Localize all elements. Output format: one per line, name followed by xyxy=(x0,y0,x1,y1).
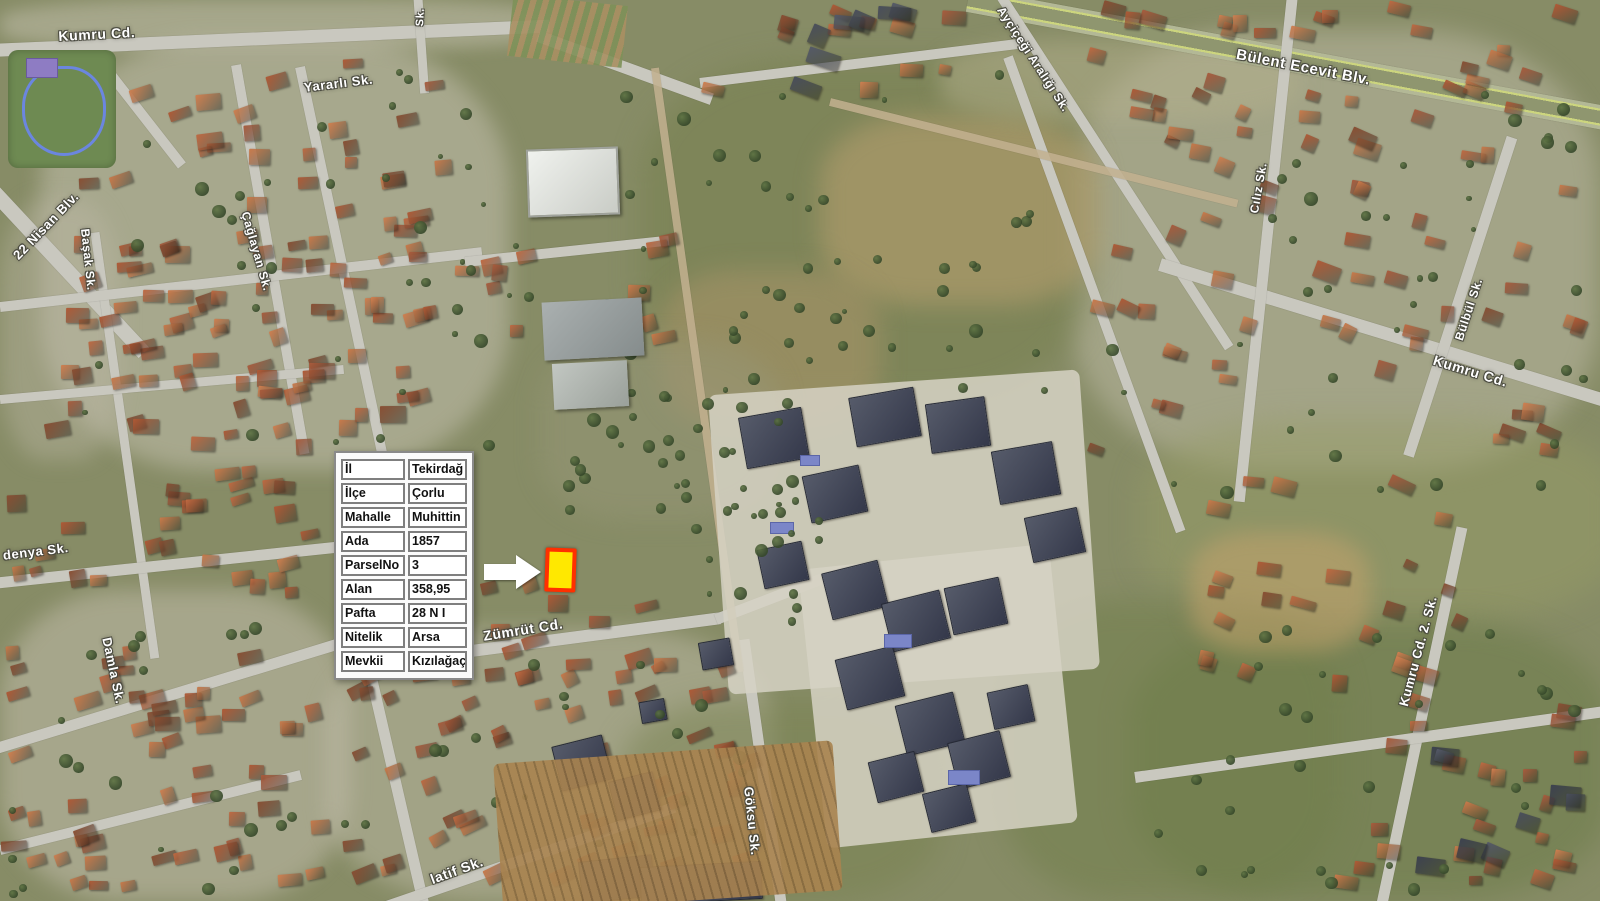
tree xyxy=(751,513,757,519)
tree xyxy=(1254,662,1263,671)
building xyxy=(311,304,334,316)
building xyxy=(1519,67,1543,85)
parcel-info-row: Pafta28 N I xyxy=(341,603,467,624)
building xyxy=(1087,443,1105,457)
tree xyxy=(1154,829,1163,838)
tree xyxy=(1325,877,1338,890)
tree xyxy=(1408,883,1421,896)
park-area xyxy=(8,50,116,168)
tree xyxy=(606,425,620,439)
building xyxy=(179,372,197,392)
building xyxy=(344,278,367,289)
road xyxy=(699,38,1028,88)
building xyxy=(515,248,536,265)
tree xyxy=(969,324,982,337)
tree xyxy=(882,97,887,102)
building xyxy=(941,10,966,26)
tree xyxy=(361,820,370,829)
tree xyxy=(681,492,692,503)
tree xyxy=(803,263,814,274)
tree xyxy=(1417,275,1424,282)
building xyxy=(1469,876,1482,885)
building xyxy=(300,528,319,540)
building xyxy=(548,595,568,612)
tree xyxy=(246,429,259,442)
building xyxy=(190,436,215,451)
building xyxy=(615,668,633,683)
building xyxy=(1552,4,1579,24)
tree xyxy=(1237,342,1242,347)
building xyxy=(1197,649,1214,666)
arrow-head xyxy=(516,555,541,589)
tree xyxy=(1196,865,1207,876)
building xyxy=(1233,15,1248,32)
building xyxy=(265,71,289,91)
tree xyxy=(1518,670,1525,677)
building xyxy=(1299,110,1321,124)
building xyxy=(359,687,374,702)
building xyxy=(148,742,164,757)
tree xyxy=(641,246,647,252)
building xyxy=(1200,212,1222,228)
building xyxy=(429,829,450,847)
tree xyxy=(794,303,805,314)
arrow-shaft xyxy=(484,564,517,580)
building xyxy=(71,367,93,386)
building xyxy=(129,83,155,103)
road xyxy=(1403,136,1517,458)
tree xyxy=(729,448,736,455)
building xyxy=(67,798,86,813)
tree xyxy=(1279,703,1292,716)
tree xyxy=(1324,285,1332,293)
warehouse-building xyxy=(526,146,620,217)
building xyxy=(1261,592,1281,609)
tree xyxy=(946,345,953,352)
tree xyxy=(335,356,341,362)
tree xyxy=(842,309,848,315)
building xyxy=(560,669,579,689)
building xyxy=(274,480,296,495)
building xyxy=(303,147,317,161)
building xyxy=(6,686,30,702)
parcel-info-row: ParselNo3 xyxy=(341,555,467,576)
tree xyxy=(749,150,761,162)
building xyxy=(192,765,212,779)
tree xyxy=(620,91,632,103)
building xyxy=(69,568,87,587)
building xyxy=(233,104,256,124)
building xyxy=(74,690,103,711)
tree xyxy=(559,692,568,701)
tree xyxy=(1466,196,1472,202)
building xyxy=(261,775,287,791)
tree xyxy=(1220,486,1233,499)
building xyxy=(1344,232,1371,249)
building xyxy=(310,819,330,834)
tree xyxy=(1521,802,1529,810)
tree xyxy=(1106,344,1118,356)
building xyxy=(262,311,279,323)
building xyxy=(89,881,109,891)
building xyxy=(534,698,550,710)
building xyxy=(201,555,219,568)
building xyxy=(589,616,610,628)
building xyxy=(231,493,252,508)
tree xyxy=(774,418,782,426)
tree xyxy=(691,524,702,535)
tree xyxy=(784,338,794,348)
parcel-field-label: Ada xyxy=(341,531,405,552)
tree xyxy=(674,483,680,489)
building xyxy=(165,483,180,498)
tree xyxy=(326,179,335,188)
building xyxy=(66,308,89,323)
tree xyxy=(625,190,635,200)
tree xyxy=(806,357,813,364)
parcel-field-value: Kızılağaç xyxy=(408,651,467,672)
parcel-field-value: 28 N I xyxy=(408,603,467,624)
building xyxy=(54,851,71,867)
tree xyxy=(779,93,787,101)
parcel-field-value: 1857 xyxy=(408,531,467,552)
building xyxy=(235,375,248,390)
tree xyxy=(1536,480,1546,490)
tree xyxy=(1225,806,1234,815)
tree xyxy=(729,326,739,336)
building xyxy=(197,687,210,700)
building xyxy=(1574,751,1587,763)
building xyxy=(70,874,89,891)
building xyxy=(26,853,48,868)
tree xyxy=(414,221,427,234)
building xyxy=(274,504,298,524)
tree xyxy=(723,387,729,393)
parcel-field-value: Muhittin xyxy=(408,507,467,528)
parcel-field-label: Mahalle xyxy=(341,507,405,528)
building xyxy=(396,366,410,379)
building xyxy=(1410,24,1433,39)
building xyxy=(281,257,301,273)
building xyxy=(1384,270,1408,289)
tree xyxy=(143,140,151,148)
tree xyxy=(1268,214,1277,223)
tree xyxy=(1301,711,1313,723)
building xyxy=(1521,403,1545,423)
tree xyxy=(1428,272,1438,282)
tree xyxy=(762,286,770,294)
tree xyxy=(1415,700,1423,708)
building xyxy=(1206,500,1232,518)
tree xyxy=(58,717,65,724)
tree xyxy=(1445,640,1456,651)
building xyxy=(257,370,277,387)
large-building-annex xyxy=(552,360,629,410)
tree xyxy=(939,263,950,274)
building xyxy=(1116,298,1140,318)
building xyxy=(6,495,26,513)
tree xyxy=(888,343,897,352)
tree xyxy=(655,710,665,720)
building xyxy=(1473,819,1497,836)
tree xyxy=(706,556,713,563)
building xyxy=(1535,832,1550,846)
tree xyxy=(1304,192,1317,205)
tree xyxy=(471,733,481,743)
building xyxy=(484,667,504,682)
tree xyxy=(575,464,586,475)
tree xyxy=(507,293,512,298)
tree xyxy=(937,285,949,297)
building xyxy=(0,840,26,852)
building xyxy=(44,420,72,439)
building xyxy=(1530,869,1555,890)
tree xyxy=(1247,866,1255,874)
building xyxy=(196,93,222,111)
building xyxy=(1371,823,1388,836)
building xyxy=(162,732,183,749)
building xyxy=(510,325,523,337)
satellite-map[interactable]: Kumru Cd.Yararlı Sk.22 Nisan Blv.Başak S… xyxy=(0,0,1600,901)
building xyxy=(383,216,397,231)
building xyxy=(462,695,480,711)
tree xyxy=(1289,236,1297,244)
tree xyxy=(240,630,249,639)
building xyxy=(244,124,261,141)
tree xyxy=(452,304,463,315)
parcel-field-value: Arsa xyxy=(408,627,467,648)
building xyxy=(1137,303,1155,320)
building xyxy=(1411,109,1435,128)
tree xyxy=(958,383,968,393)
tree xyxy=(618,442,624,448)
tree xyxy=(651,158,659,166)
tree xyxy=(229,866,239,876)
tree xyxy=(1386,862,1393,869)
tree xyxy=(513,243,519,249)
building xyxy=(1124,11,1141,29)
tree xyxy=(663,435,674,446)
tree xyxy=(158,847,164,853)
tree xyxy=(389,102,397,110)
tree xyxy=(483,440,494,451)
building xyxy=(1410,721,1427,731)
building xyxy=(1212,359,1228,370)
tree xyxy=(1308,409,1315,416)
tree xyxy=(317,122,327,132)
tree xyxy=(1377,486,1384,493)
tree xyxy=(1226,755,1235,764)
building xyxy=(351,863,378,885)
tree xyxy=(755,544,768,557)
orchard-field xyxy=(507,0,628,68)
tree xyxy=(212,205,225,218)
building xyxy=(486,281,503,296)
building xyxy=(108,170,132,188)
parcel-info-row: MahalleMuhittin xyxy=(341,507,467,528)
tree xyxy=(452,331,457,336)
building xyxy=(1089,300,1115,318)
tree xyxy=(830,313,842,325)
tree xyxy=(1303,287,1312,296)
tree xyxy=(736,402,748,414)
tree xyxy=(748,373,760,385)
parcel-info-row: İlTekirdağ xyxy=(341,459,467,480)
building xyxy=(396,112,419,127)
tree xyxy=(565,505,575,515)
building xyxy=(491,264,507,281)
tree xyxy=(1282,625,1292,635)
tree xyxy=(713,149,726,162)
building xyxy=(355,408,368,422)
building xyxy=(1353,861,1374,877)
building xyxy=(790,76,824,100)
parcel-field-value: Tekirdağ xyxy=(408,459,467,480)
building xyxy=(11,565,26,582)
apartment-block xyxy=(991,441,1061,505)
tree xyxy=(1579,375,1587,383)
tree xyxy=(333,439,339,445)
parcel-field-value: 3 xyxy=(408,555,467,576)
tree xyxy=(1511,783,1521,793)
tree xyxy=(629,413,637,421)
tree xyxy=(8,855,17,864)
tree xyxy=(656,503,667,514)
building xyxy=(1434,512,1453,528)
building xyxy=(1536,423,1562,442)
building xyxy=(382,853,405,873)
tree xyxy=(788,530,795,537)
building xyxy=(214,467,240,482)
tree xyxy=(636,661,645,670)
parcel-field-label: İlçe xyxy=(341,483,405,504)
parcel-info-row: Ada1857 xyxy=(341,531,467,552)
tree xyxy=(19,884,27,892)
building xyxy=(345,157,358,168)
tree xyxy=(1294,760,1306,772)
tree xyxy=(460,259,466,265)
tree xyxy=(429,744,442,757)
tree xyxy=(341,820,349,828)
tree xyxy=(639,287,646,294)
building xyxy=(1166,224,1188,246)
apartment-block xyxy=(925,396,991,454)
tree xyxy=(524,292,534,302)
building xyxy=(168,289,194,303)
tree xyxy=(1329,450,1342,463)
building xyxy=(298,177,319,190)
building xyxy=(651,329,677,344)
building xyxy=(1325,569,1350,586)
tree xyxy=(264,179,270,185)
parcel-field-value: Çorlu xyxy=(408,483,467,504)
building xyxy=(308,235,327,249)
building xyxy=(635,599,659,613)
building xyxy=(342,839,363,852)
building xyxy=(1345,95,1359,108)
street-label: Sk. xyxy=(414,8,427,27)
parcel-field-label: Mevkii xyxy=(341,651,405,672)
building xyxy=(806,23,830,48)
building xyxy=(437,717,462,736)
tree xyxy=(252,304,260,312)
tree xyxy=(421,278,431,288)
building xyxy=(268,571,286,589)
building xyxy=(88,340,103,356)
tree xyxy=(474,334,488,348)
pool xyxy=(884,634,912,648)
building xyxy=(608,689,623,706)
parcel-field-label: Alan xyxy=(341,579,405,600)
tree xyxy=(404,75,413,84)
building xyxy=(1490,769,1506,787)
tree xyxy=(396,69,403,76)
tree xyxy=(466,265,476,275)
tree xyxy=(815,536,823,544)
tree xyxy=(834,258,841,265)
building xyxy=(372,313,393,324)
tree xyxy=(681,479,690,488)
highlighted-parcel[interactable] xyxy=(544,547,577,592)
building xyxy=(278,873,302,887)
tree xyxy=(1316,866,1327,877)
tree xyxy=(1537,685,1547,695)
building xyxy=(1424,236,1445,250)
sports-court xyxy=(26,58,58,78)
building xyxy=(1254,28,1276,38)
building xyxy=(211,290,227,305)
building xyxy=(68,401,82,416)
building xyxy=(328,121,348,139)
tree xyxy=(276,820,287,831)
tree xyxy=(838,341,848,351)
tree xyxy=(1466,160,1474,168)
tree xyxy=(95,361,104,370)
tree xyxy=(731,503,738,510)
tree xyxy=(1481,91,1489,99)
building xyxy=(1523,769,1537,783)
tree xyxy=(734,587,747,600)
building xyxy=(1213,157,1235,178)
tree xyxy=(788,617,796,625)
tree xyxy=(1565,141,1577,153)
tree xyxy=(786,193,794,201)
street-label: Yararlı Sk. xyxy=(303,72,374,95)
building xyxy=(938,64,952,76)
building xyxy=(185,498,207,512)
tree xyxy=(1191,775,1202,786)
building xyxy=(79,178,100,190)
tree xyxy=(210,790,222,802)
building xyxy=(120,880,137,893)
building xyxy=(85,856,106,871)
apartment-block xyxy=(698,637,734,670)
building xyxy=(1385,738,1408,755)
building xyxy=(250,579,266,594)
tree xyxy=(244,823,258,837)
building xyxy=(142,289,163,301)
tree xyxy=(59,754,73,768)
building xyxy=(1218,374,1237,386)
tree xyxy=(287,812,297,822)
tree xyxy=(227,215,237,225)
tree xyxy=(1372,633,1382,643)
building xyxy=(348,349,366,363)
parcel-field-label: Nitelik xyxy=(341,627,405,648)
tree xyxy=(9,890,18,899)
tree xyxy=(1430,478,1443,491)
building xyxy=(1130,89,1153,104)
